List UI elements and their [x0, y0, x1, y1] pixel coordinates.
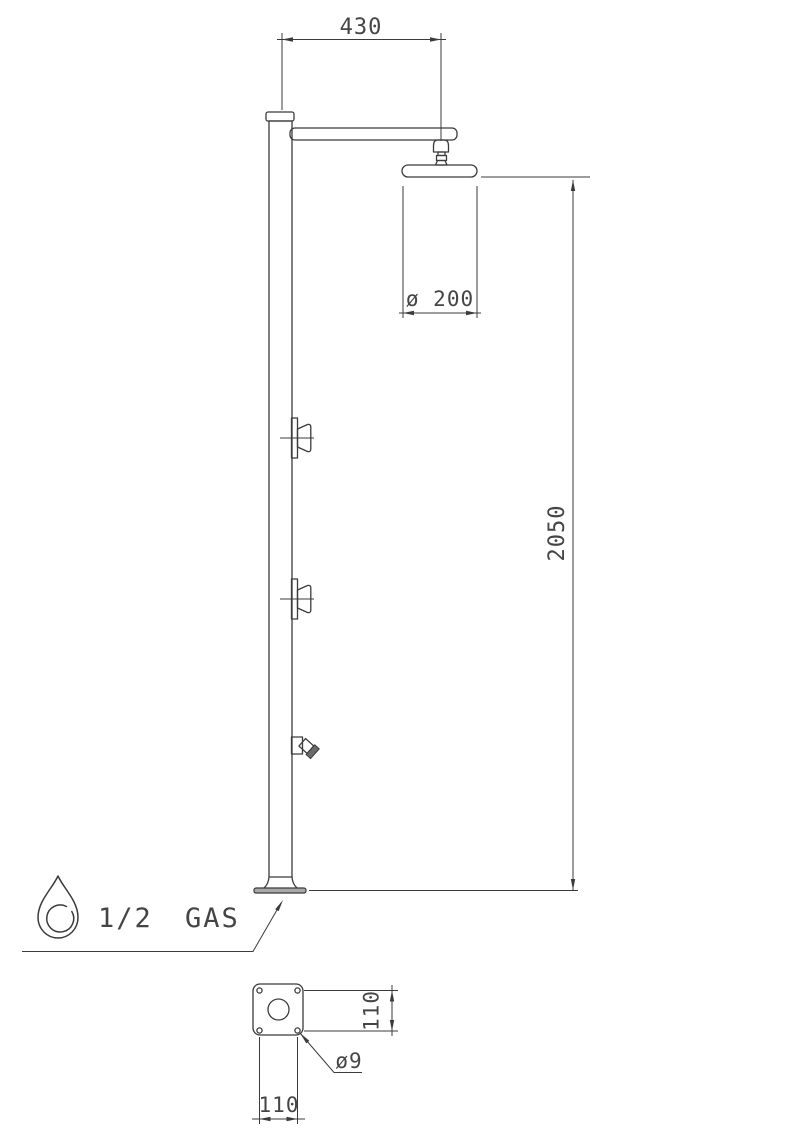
- shower-column-outline: [269, 121, 292, 877]
- dimension-base-vertical: 110: [304, 985, 398, 1036]
- dim-label-2050: 2050: [545, 505, 570, 562]
- anchor-hole-top-left: [257, 988, 262, 993]
- shower-column-drawing: 430 ø 200 2050 1/2 GAS: [0, 0, 800, 1133]
- inlet-connection-label: 1/2 GAS: [98, 903, 240, 934]
- anchor-hole-top-right: [295, 988, 300, 993]
- shower-head: [402, 165, 477, 177]
- column-base-flare-left: [264, 877, 269, 888]
- dim-label-head-diameter: ø 200: [406, 287, 474, 311]
- dimension-base-horizontal: 110: [252, 1037, 305, 1124]
- column-base-flare-right: [292, 877, 297, 888]
- column-top-cap: [266, 112, 294, 121]
- shower-arm: [290, 128, 457, 140]
- dimension-arm-offset: 430: [277, 15, 446, 141]
- dim-label-anchor-hole: ø9: [335, 1049, 362, 1073]
- inlet-note: 1/2 GAS: [22, 876, 283, 952]
- shower-head-stem: [436, 161, 448, 166]
- foot-spout-body: [292, 737, 303, 754]
- base-plate-front: [254, 888, 306, 893]
- anchor-hole-bottom-left: [257, 1028, 262, 1033]
- anchor-hole-bottom-right: [295, 1028, 300, 1033]
- dimension-head-diameter: ø 200: [399, 186, 481, 318]
- dimension-total-height: 2050: [481, 177, 590, 890]
- shower-head-collar: [437, 156, 447, 161]
- anchor-hole-callout: ø9: [300, 1033, 363, 1073]
- shower-head-ball-joint: [434, 140, 449, 152]
- dim-label-110-horizontal: 110: [259, 1093, 300, 1117]
- technical-drawing-page: 430 ø 200 2050 1/2 GAS: [0, 0, 800, 1133]
- dim-label-430: 430: [340, 15, 383, 40]
- foot-spout-nozzle: [298, 738, 319, 759]
- column-tube-section: [268, 999, 289, 1020]
- dim-label-110-vertical: 110: [360, 990, 384, 1031]
- water-drop-icon: [38, 876, 78, 938]
- base-plate-plan-view: 110 ø9 110: [252, 984, 398, 1124]
